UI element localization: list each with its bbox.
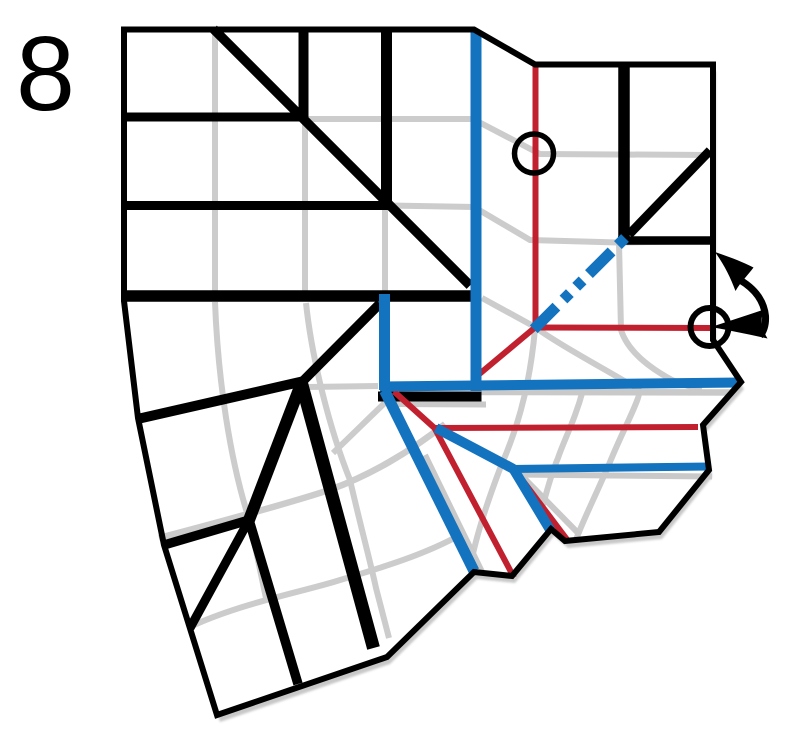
svg-text:8: 8 bbox=[16, 15, 75, 133]
